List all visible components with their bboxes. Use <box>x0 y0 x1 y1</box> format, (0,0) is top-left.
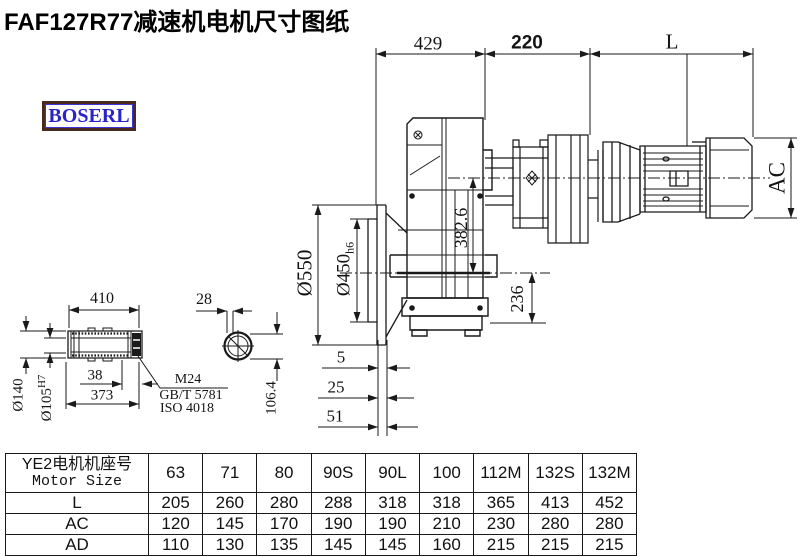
dim-220-label: 220 <box>511 34 543 53</box>
adapter-stage <box>485 135 603 243</box>
dim-382-label: 382.6 <box>452 208 470 249</box>
table-cell: 145 <box>311 535 365 556</box>
col-header: 132M <box>582 454 636 493</box>
col-header: 80 <box>257 454 311 493</box>
col-header: 132S <box>528 454 582 493</box>
dim-dia450h6-label: Ø450h6 <box>335 242 356 296</box>
table-cell: 135 <box>257 535 311 556</box>
table-cell: 413 <box>528 493 582 514</box>
table-cell: 452 <box>582 493 636 514</box>
dim-51-label: 51 <box>327 408 344 425</box>
col-header: 63 <box>149 454 203 493</box>
shaft-detail-view <box>68 328 254 362</box>
table-cell: 215 <box>474 535 528 556</box>
table-cell: 145 <box>365 535 419 556</box>
dim-38-label: 38 <box>88 369 103 384</box>
table-cell: 280 <box>257 493 311 514</box>
header-cn: YE2电机机座号 <box>6 455 148 474</box>
dim-106-label: 106.4 <box>265 381 280 415</box>
row-label: AD <box>6 535 149 556</box>
callout-iso4018-label: ISO 4018 <box>160 402 214 416</box>
table-cell: 205 <box>149 493 203 514</box>
dim-L-label: L <box>666 32 679 53</box>
table-cell: 280 <box>528 514 582 535</box>
table-cell: 318 <box>365 493 419 514</box>
row-label: AC <box>6 514 149 535</box>
col-header: 112M <box>474 454 528 493</box>
col-header: 90L <box>365 454 419 493</box>
table-cell: 215 <box>528 535 582 556</box>
table-row-L: L 205 260 280 288 318 318 365 413 452 <box>6 493 637 514</box>
col-header: 90S <box>311 454 365 493</box>
motor-size-header-cell: YE2电机机座号 Motor Size <box>6 454 149 493</box>
col-header: 100 <box>420 454 474 493</box>
dim-dia105h7-label: Ø105H7 <box>37 375 55 422</box>
dim-AC-label: AC <box>766 162 789 194</box>
table-cell: 318 <box>420 493 474 514</box>
table-cell: 210 <box>420 514 474 535</box>
dim-429-label: 429 <box>414 35 443 54</box>
motor-size-table: YE2电机机座号 Motor Size 63 71 80 90S 90L 100… <box>5 453 637 556</box>
drawing-sheet: FAF127R77减速机电机尺寸图纸 BOSERL <box>0 0 800 557</box>
table-cell: 160 <box>420 535 474 556</box>
table-cell: 215 <box>582 535 636 556</box>
col-header: 71 <box>203 454 257 493</box>
table-cell: 288 <box>311 493 365 514</box>
dim-28-label: 28 <box>196 292 212 308</box>
table-cell: 130 <box>203 535 257 556</box>
dim-dia140-label: Ø140 <box>12 378 27 411</box>
motor <box>603 138 752 222</box>
shaft-detail-dimensions <box>20 305 283 409</box>
callout-m24-label: M24 <box>175 373 201 387</box>
table-cell: 280 <box>582 514 636 535</box>
header-en: Motor Size <box>6 474 148 491</box>
table-cell: 120 <box>149 514 203 535</box>
table-cell: 170 <box>257 514 311 535</box>
dim-dia550-label: Ø550 <box>295 250 316 297</box>
table-cell: 365 <box>474 493 528 514</box>
dim-373-label: 373 <box>91 389 114 404</box>
dim-410-label: 410 <box>90 291 114 307</box>
table-cell: 190 <box>365 514 419 535</box>
output-flange <box>368 205 407 345</box>
table-cell: 260 <box>203 493 257 514</box>
gearbox-housing <box>390 118 497 336</box>
table-row-AC: AC 120 145 170 190 190 210 230 280 280 <box>6 514 637 535</box>
table-cell: 230 <box>474 514 528 535</box>
row-label: L <box>6 493 149 514</box>
table-cell: 145 <box>203 514 257 535</box>
table-row-AD: AD 110 130 135 145 145 160 215 215 215 <box>6 535 637 556</box>
dim-25-label: 25 <box>328 379 345 396</box>
dim-5-label: 5 <box>337 349 346 366</box>
table-cell: 190 <box>311 514 365 535</box>
dimension-lines <box>312 48 797 436</box>
dim-236-label: 236 <box>508 286 526 313</box>
table-cell: 110 <box>149 535 203 556</box>
